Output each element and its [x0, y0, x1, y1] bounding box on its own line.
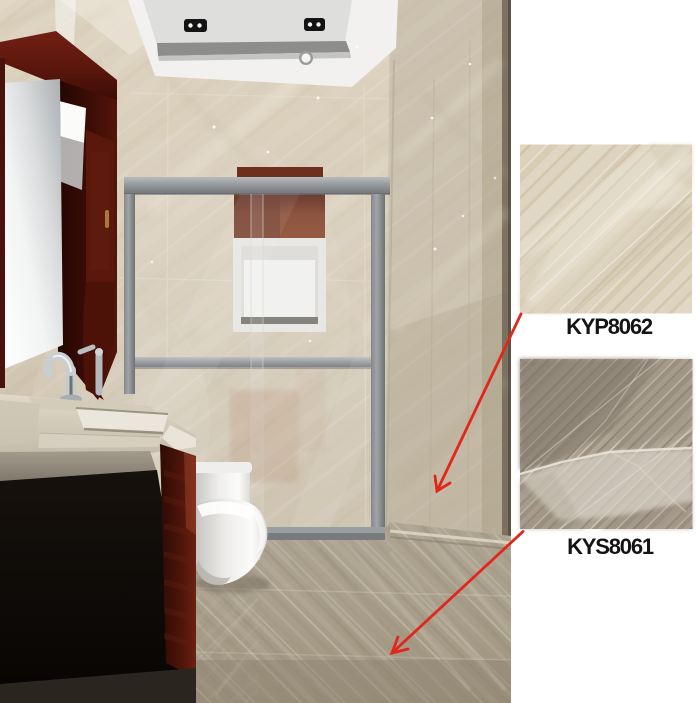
- svg-text:KYS8061: KYS8061: [567, 534, 654, 559]
- svg-text:KYP8062: KYP8062: [566, 314, 653, 339]
